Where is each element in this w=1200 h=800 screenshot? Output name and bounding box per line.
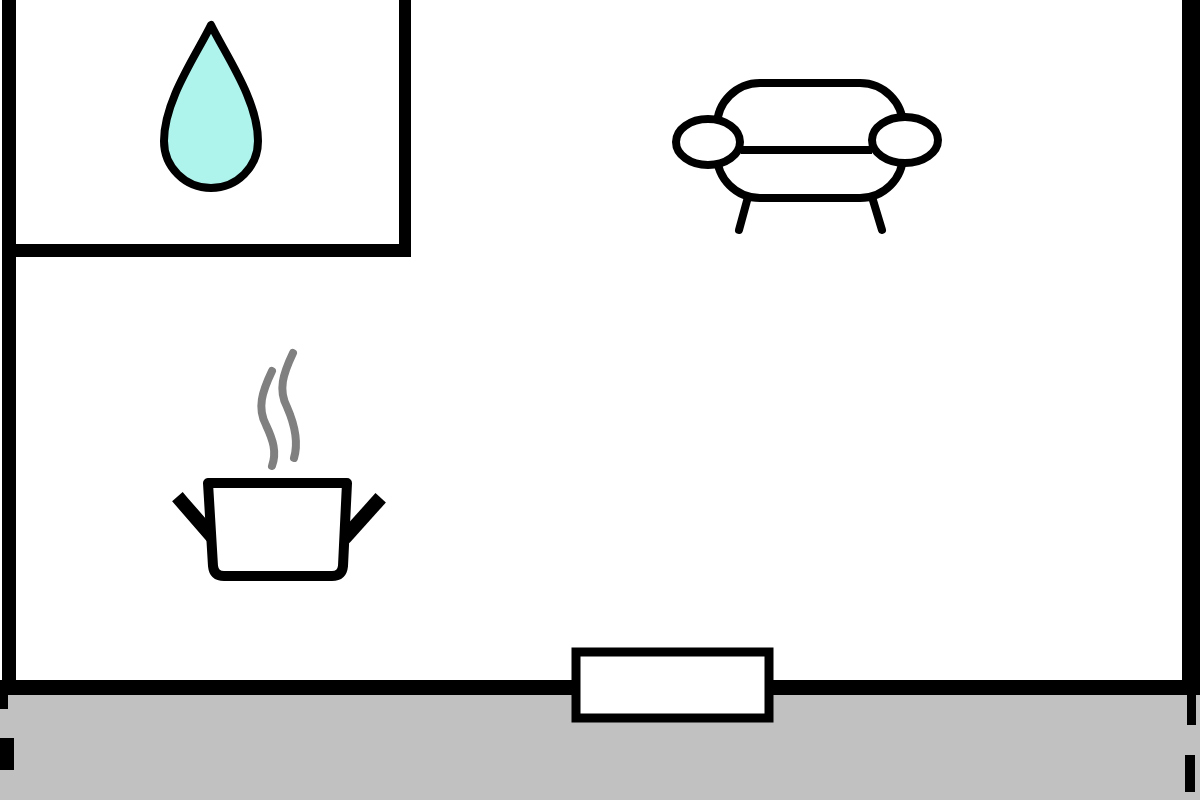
sofa-armrest-left [676,119,740,165]
door-opening [576,652,769,718]
wall-stub-right-upper [1187,695,1196,725]
floor-plan [0,0,1200,800]
floor-plan-canvas [0,0,1200,800]
wall-stub-left-upper [0,695,8,709]
water-room-wall-bottom [2,244,411,257]
pot-body [208,483,347,576]
wall-stub-left-lower [0,738,14,770]
sofa-armrest-right [872,117,938,163]
wall-left [2,0,16,695]
wall-right [1182,0,1200,695]
wall-stub-right-lower [1185,755,1195,792]
water-room-wall-right [399,0,411,257]
